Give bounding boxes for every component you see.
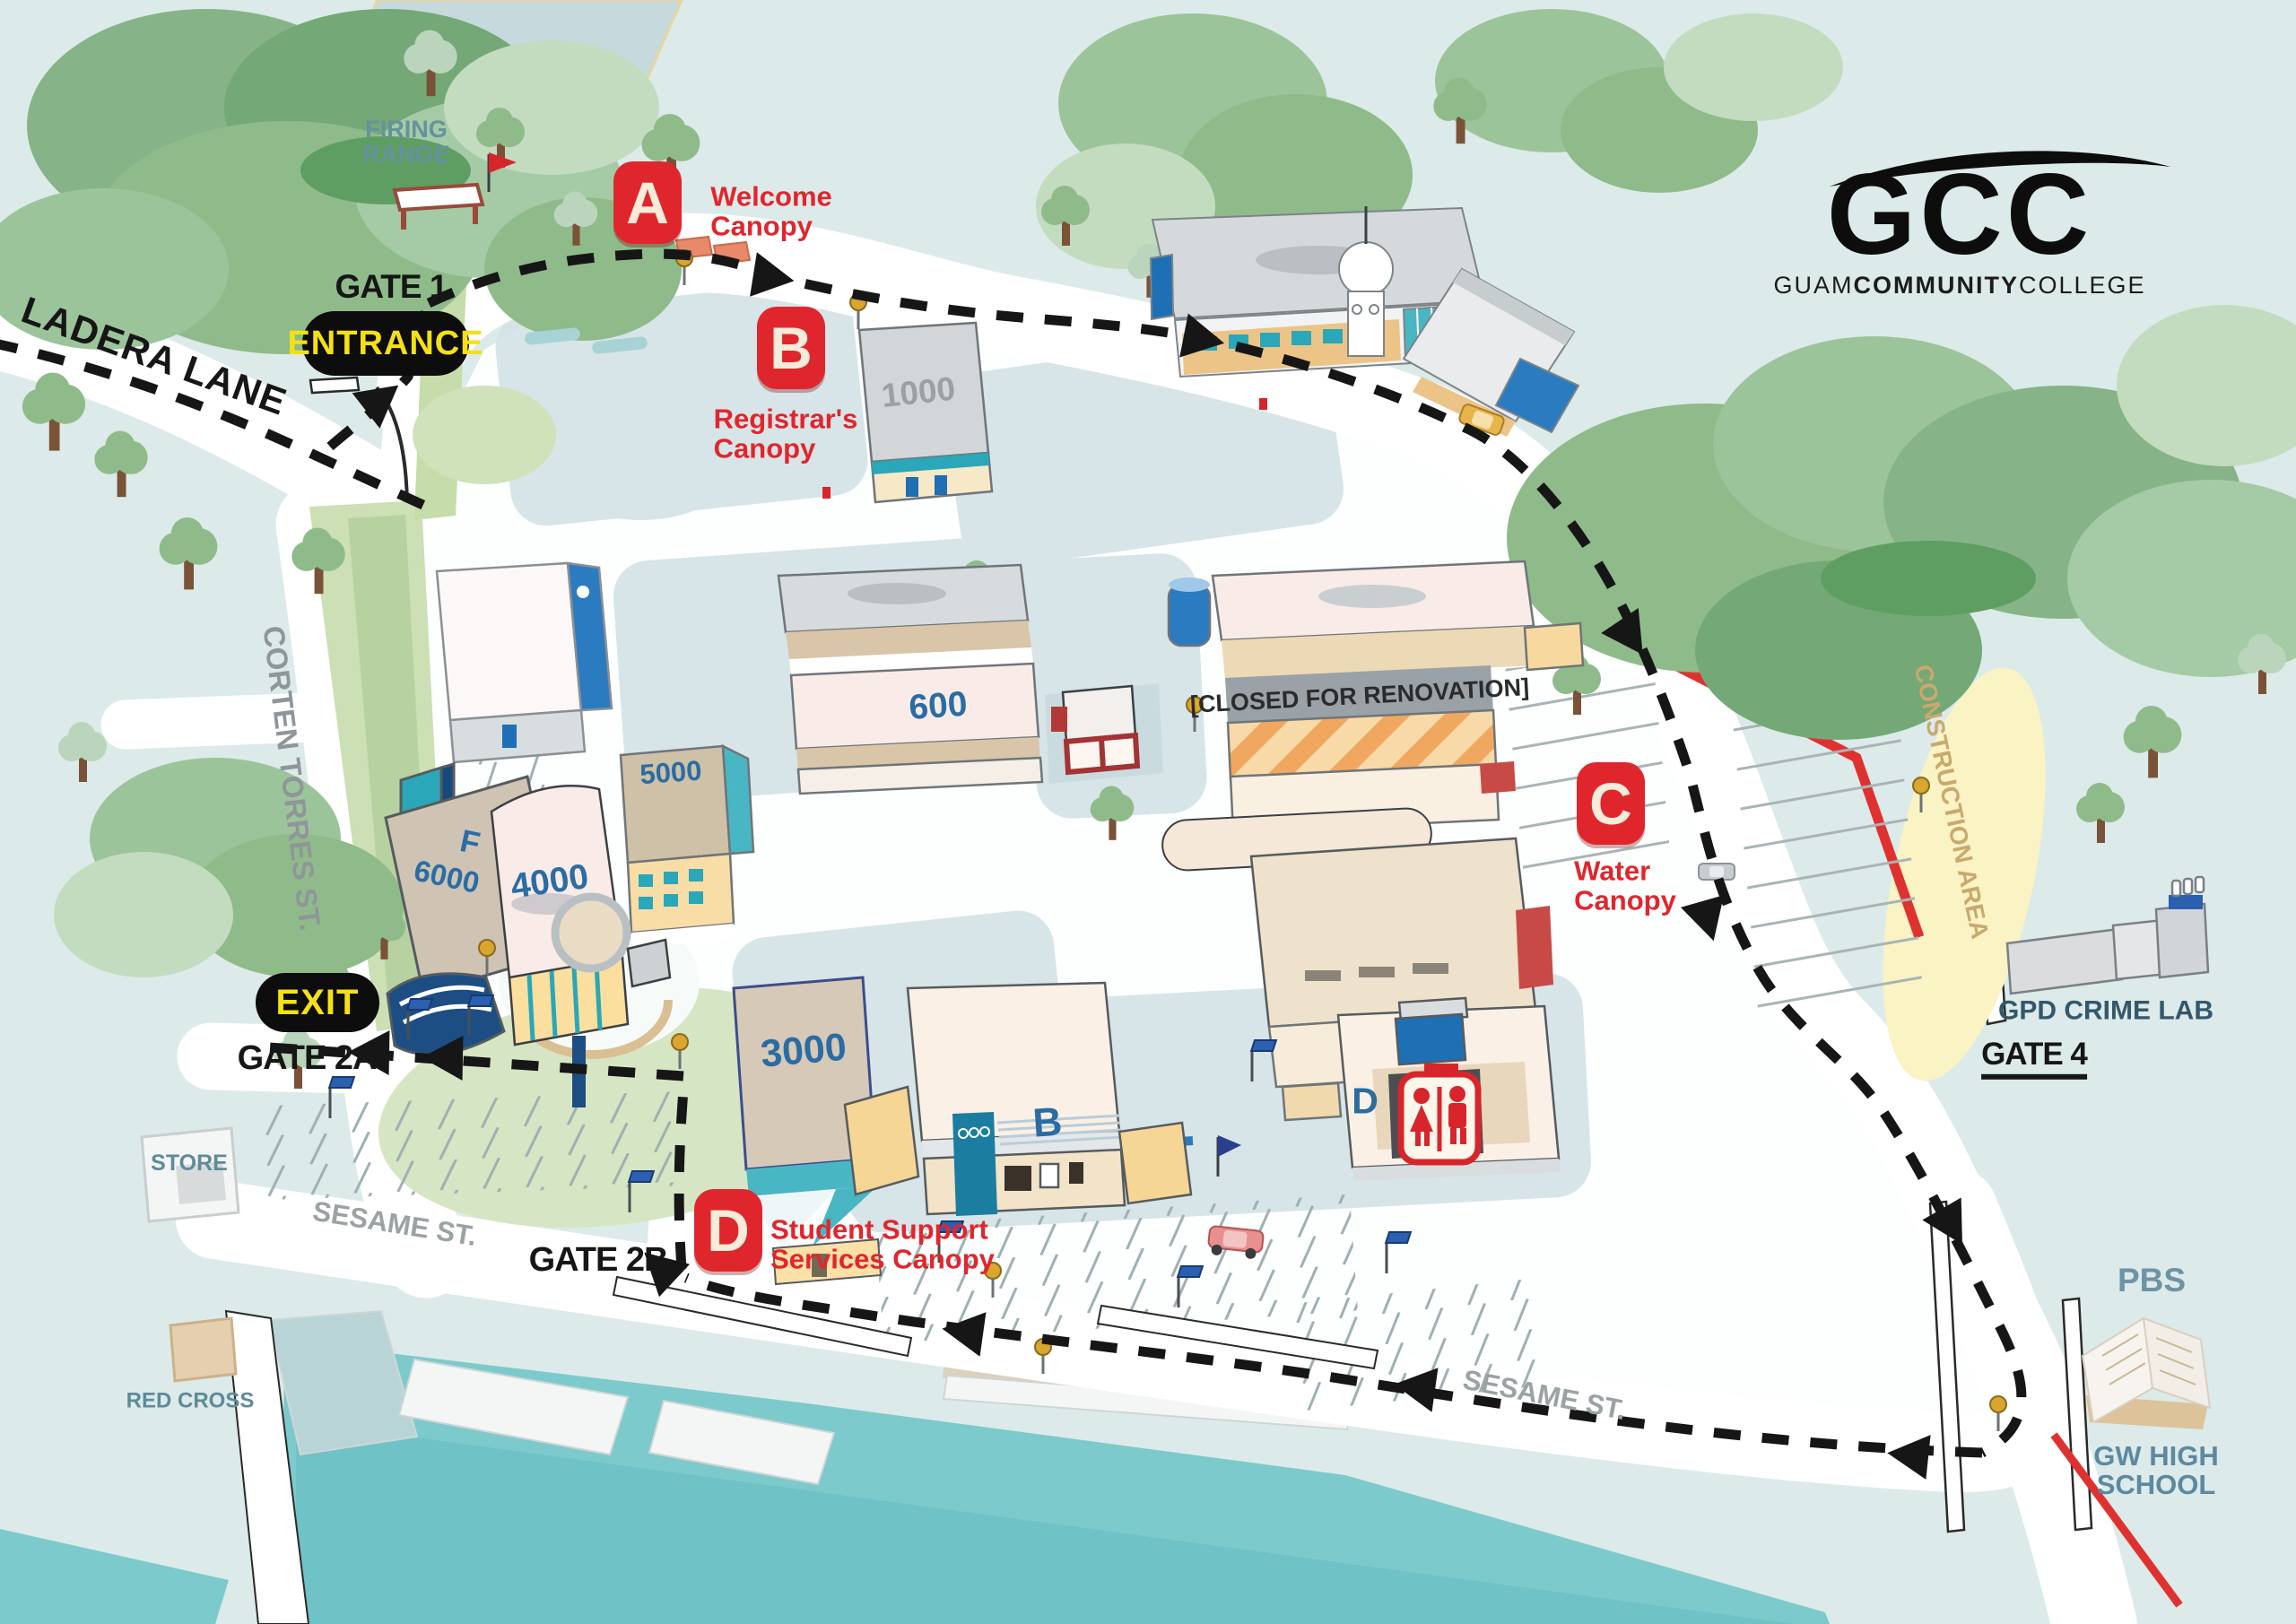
landmark-label-pbs: PBS xyxy=(2118,1264,2186,1298)
building-label-d: D xyxy=(1352,1082,1378,1121)
gate-2b-label: GATE 2B xyxy=(529,1243,668,1279)
badge-b: B xyxy=(757,307,825,389)
exit-sign: EXIT xyxy=(256,973,379,1032)
restroom-icon xyxy=(1401,1064,1478,1162)
building-red-cross xyxy=(170,1318,236,1381)
building-600 xyxy=(778,565,1042,794)
canopy-label-registrars: Registrar'sCanopy xyxy=(714,404,858,463)
canopy-label-water: WaterCanopy xyxy=(1574,856,1676,915)
landmark-label-gpd: GPD CRIME LAB xyxy=(1998,996,2213,1024)
gate-4-label: GATE 4 xyxy=(1981,1038,2087,1071)
building-label-3000: 3000 xyxy=(759,1028,848,1075)
gate-2a-label: GATE 2A xyxy=(238,1041,377,1077)
building-label-600: 600 xyxy=(908,687,969,727)
canopy-label-welcome: WelcomeCanopy xyxy=(710,182,832,240)
landmark-label-gwhs: GW HIGHSCHOOL xyxy=(2093,1442,2219,1499)
badge-a: A xyxy=(613,161,682,244)
building-label-5000: 5000 xyxy=(639,757,702,790)
building-label-b: B xyxy=(1031,1101,1064,1145)
landmark-label-red-cross: RED CROSS xyxy=(126,1391,255,1413)
campus-map: GCC GUAMCOMMUNITYCOLLEGE A B C D Welcome… xyxy=(0,0,2296,1624)
gcc-logo: GCC GUAMCOMMUNITYCOLLEGE xyxy=(1773,163,2145,300)
gate-1-label: GATE 1 xyxy=(335,270,448,304)
badge-d: D xyxy=(694,1189,762,1272)
canopy-label-student-support: Student SupportServices Canopy xyxy=(770,1215,995,1273)
badge-c: C xyxy=(1577,762,1645,845)
gcc-logo-name: GUAMCOMMUNITYCOLLEGE xyxy=(1773,272,2145,300)
entrance-sign: ENTRANCE xyxy=(302,311,469,376)
car-gray-icon xyxy=(1699,864,1735,880)
landmark-label-store: STORE xyxy=(151,1151,228,1175)
gcc-logo-acronym: GCC xyxy=(1773,163,2145,266)
building-label-1000: 1000 xyxy=(880,372,957,414)
building-red-small xyxy=(1045,683,1163,784)
area-label-firing-range: FIRINGRANGE xyxy=(362,117,450,167)
